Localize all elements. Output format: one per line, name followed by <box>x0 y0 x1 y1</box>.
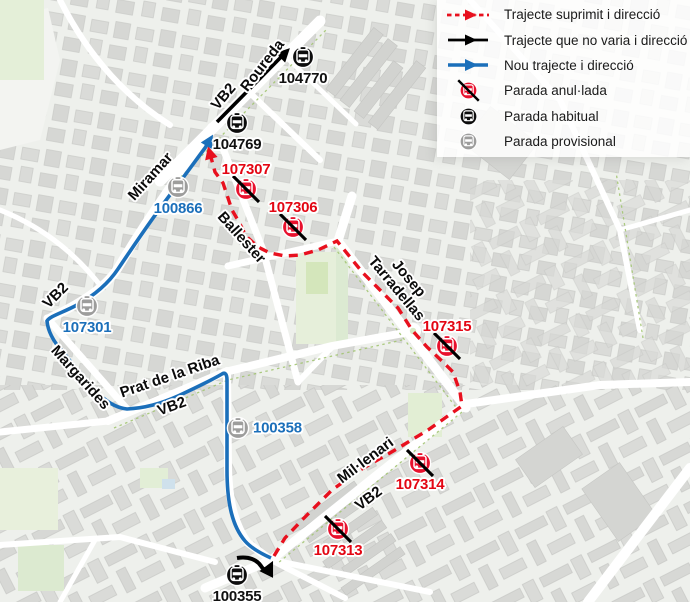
cancelled-stop-icon <box>231 174 261 204</box>
legend-panel: Trajecte suprimit i direcció Trajecte qu… <box>437 0 690 157</box>
legend-item-label: Parada anul·lada <box>504 83 607 98</box>
regular-stop-icon <box>222 108 252 138</box>
stop-label: 107301 <box>63 319 112 336</box>
provisional-stop-icon <box>437 130 499 153</box>
stop-label: 107315 <box>423 318 472 335</box>
cancelled-stop-icon <box>405 448 435 478</box>
legend-item: Trajecte suprimit i direcció <box>437 2 690 27</box>
regular-stop-icon <box>222 560 252 590</box>
legend-item: Parada provisional <box>437 129 690 154</box>
regular-stop-icon <box>288 42 318 72</box>
stop-label: 100355 <box>213 588 262 602</box>
stop-label: 100358 <box>253 420 302 437</box>
legend-item-label: Trajecte suprimit i direcció <box>504 7 660 22</box>
legend-item-label: Trajecte que no varia i direcció <box>504 33 687 48</box>
new-route-arrow-icon <box>437 58 499 72</box>
provisional-stop-icon <box>223 413 253 443</box>
stop-label: 107313 <box>314 542 363 559</box>
stop-label: 107306 <box>269 199 318 216</box>
provisional-stop-icon <box>72 291 102 321</box>
cancelled-stop-icon <box>323 514 353 544</box>
cancelled-stop-icon <box>278 212 308 242</box>
regular-stop-icon <box>437 105 499 128</box>
stop-label: 107314 <box>396 476 445 493</box>
stop-label: 100866 <box>154 200 203 217</box>
route-change-map: 1047701047691073071073061008661073011073… <box>0 0 690 602</box>
cancelled-stop-icon <box>437 79 499 102</box>
legend-item-label: Parada provisional <box>504 134 616 149</box>
provisional-stop-icon <box>163 172 193 202</box>
legend-item: Parada habitual <box>437 104 690 129</box>
legend-item-label: Parada habitual <box>504 109 599 124</box>
cancelled-stop-icon <box>432 331 462 361</box>
suppressed-route-arrow-icon <box>437 8 499 22</box>
stop-label: 104770 <box>279 70 328 87</box>
legend-item-label: Nou trajecte i direcció <box>504 58 634 73</box>
unchanged-route-arrow-icon <box>437 33 499 47</box>
legend-item: Nou trajecte i direcció <box>437 53 690 78</box>
legend-item: Parada anul·lada <box>437 78 690 103</box>
stop-label: 107307 <box>222 161 271 178</box>
stop-label: 104769 <box>213 136 262 153</box>
legend-item: Trajecte que no varia i direcció <box>437 27 690 52</box>
